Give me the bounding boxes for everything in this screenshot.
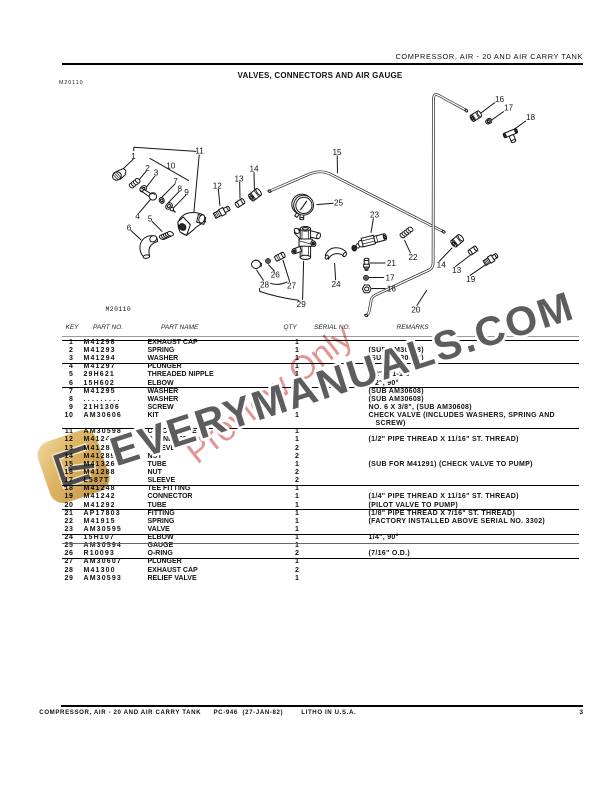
svg-text:EVERYMANUALS.COM: EVERYMANUALS.COM xyxy=(105,282,580,475)
